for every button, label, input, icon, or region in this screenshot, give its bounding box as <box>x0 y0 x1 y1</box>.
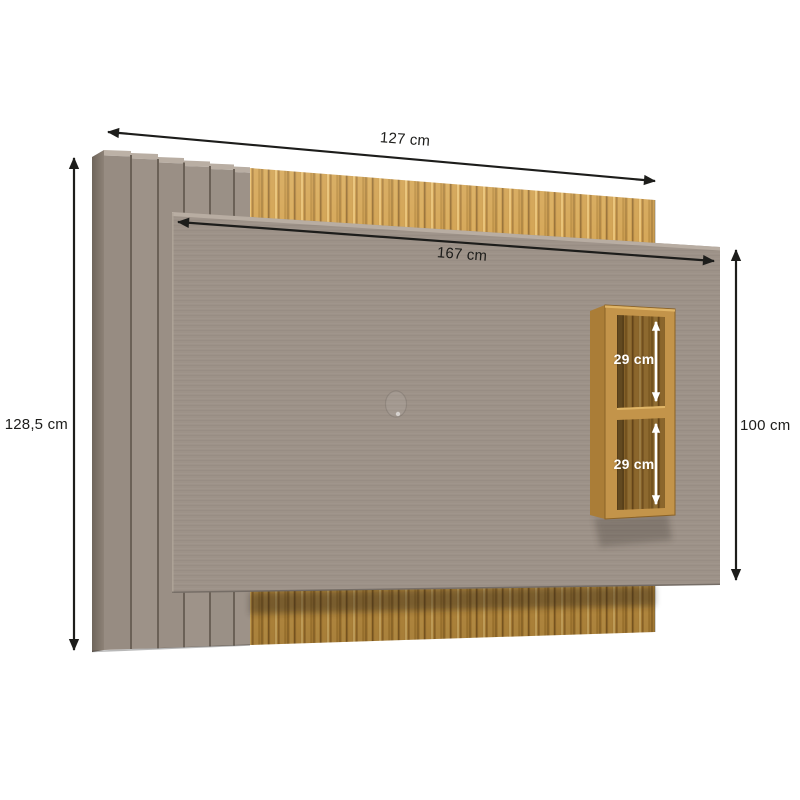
slat-side-face <box>92 150 104 652</box>
slat-top-bevel <box>234 167 250 173</box>
overall-height-label: 128,5 cm <box>0 416 68 434</box>
product-dimension-diagram: 127 cm 167 cm 128,5 cm 100 cm 29 cm 29 c… <box>0 0 800 800</box>
slat-top-bevel <box>158 157 184 164</box>
slat-top-bevel <box>210 164 234 171</box>
slat-top-bevel <box>131 153 158 160</box>
slat <box>104 156 131 651</box>
overall-width-label: 127 cm <box>379 129 431 151</box>
niche-side-face <box>590 305 605 519</box>
niche-upper-height-label: 29 cm <box>614 350 655 368</box>
slat-top-bevel <box>104 150 131 157</box>
slat-top-bevel <box>184 161 210 168</box>
shelf-niche <box>590 305 675 547</box>
front-panel-width-label: 167 cm <box>436 244 488 266</box>
front-panel-height-label: 100 cm <box>740 417 790 435</box>
slat <box>131 159 158 650</box>
furniture-illustration <box>0 0 800 800</box>
cable-hole-highlight <box>396 412 400 416</box>
niche-lower-height-label: 29 cm <box>614 455 655 473</box>
